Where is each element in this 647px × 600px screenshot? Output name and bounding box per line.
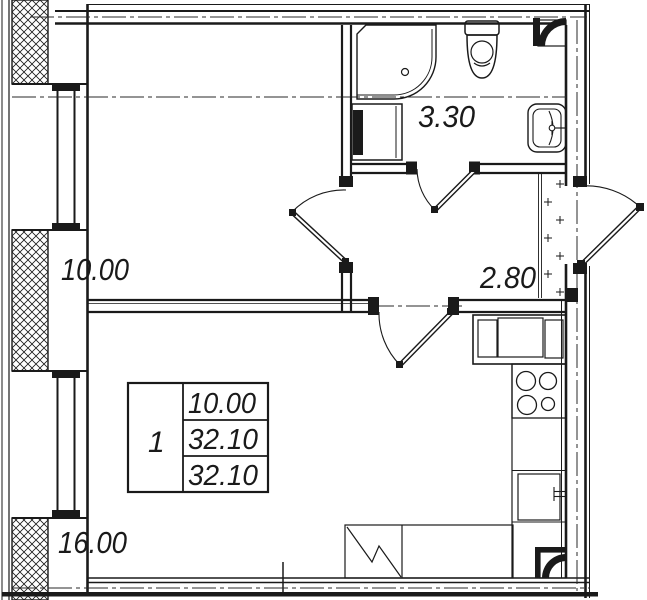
- wall-pier: [12, 0, 48, 84]
- table-value-living-area: 10.00: [188, 388, 256, 420]
- kitchen-living-area-label: 16.00: [58, 525, 127, 560]
- table-value-total-area: 32.10: [188, 424, 258, 456]
- room-area-label: 10.00: [61, 252, 129, 287]
- entrance-door: [577, 186, 644, 268]
- washbasin: [528, 104, 566, 152]
- bathroom-area-label: 3.30: [418, 99, 475, 134]
- wall-pier: [12, 230, 48, 371]
- floor-plan-canvas: 1 10.00 32.10 32.10 10.00 3.30 2.80 16.0…: [0, 0, 647, 600]
- washing-machine: [352, 104, 402, 160]
- room-door: [289, 190, 349, 265]
- bed: [345, 525, 513, 578]
- window: [52, 371, 80, 517]
- hallway-area-label: 2.80: [479, 260, 536, 295]
- sofa: [473, 315, 566, 364]
- entry-strip: [539, 174, 565, 298]
- table-value-overall-area: 32.10: [188, 460, 258, 492]
- info-table: 1 10.00 32.10 32.10: [128, 383, 268, 492]
- toilet: [465, 21, 499, 78]
- plus-marks: [544, 180, 564, 296]
- shower: [357, 25, 436, 99]
- left-wall: [2, 0, 88, 600]
- kitchen-door: [379, 308, 454, 368]
- kitchen-sink: [518, 474, 566, 520]
- window: [52, 84, 80, 230]
- apartment-number: 1: [148, 426, 165, 459]
- bathroom-door: [417, 165, 478, 213]
- axis-lines: [12, 17, 590, 591]
- stove: [512, 364, 566, 418]
- floor-plan: 1 10.00 32.10 32.10 10.00 3.30 2.80 16.0…: [0, 0, 647, 600]
- kitchen-counter: [512, 364, 566, 578]
